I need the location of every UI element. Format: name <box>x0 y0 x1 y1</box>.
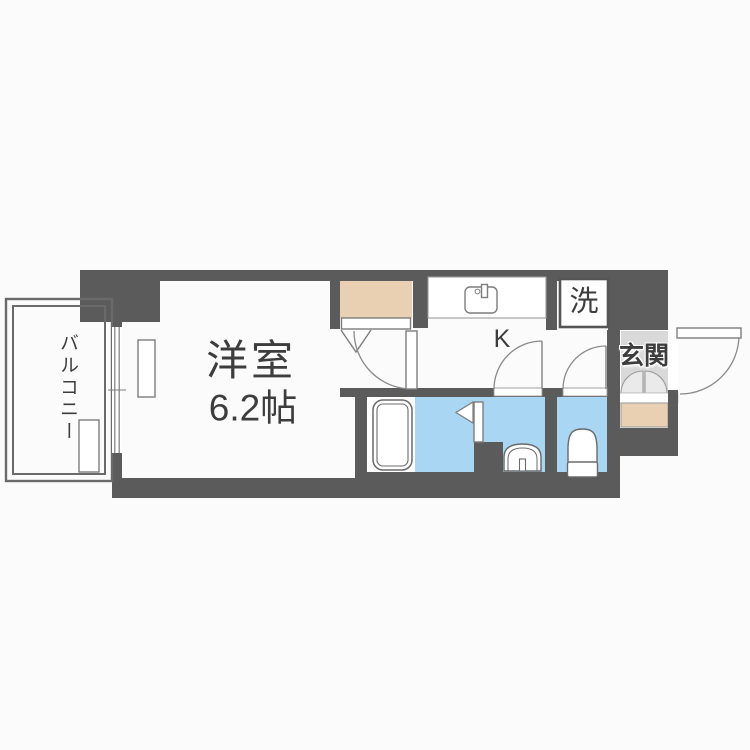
bathroom-door-leaf <box>474 402 483 442</box>
entrance-step <box>621 403 668 427</box>
toilet-door <box>563 346 607 396</box>
closet <box>340 281 412 352</box>
front-doorway-opening <box>668 330 678 390</box>
bathtub <box>373 400 412 470</box>
front-door <box>677 328 741 394</box>
washroom-door-threshold <box>494 388 542 396</box>
room-door-leaf <box>406 331 417 389</box>
faucet-lever-icon <box>482 285 488 298</box>
toilet-door-threshold <box>563 388 607 396</box>
washbasin-faucet-icon <box>520 459 526 471</box>
closet-front-track <box>342 318 411 329</box>
room-pillar <box>138 340 155 397</box>
laundry-label: 洗 <box>569 287 598 317</box>
floorplan-drawing <box>0 0 750 750</box>
faucet-icon <box>475 289 480 294</box>
main-room-size: 6.2帖 <box>209 390 297 429</box>
room-door <box>354 331 417 389</box>
balcony-utility-box <box>79 420 99 472</box>
main-room-label: 洋室 <box>206 339 296 383</box>
closet-area <box>340 281 412 318</box>
kitchen-counter <box>428 277 546 318</box>
balcony-window <box>108 327 126 453</box>
floorplan-canvas: 洋室 6.2帖 バルコニー K 洗 玄関 <box>0 0 750 750</box>
front-door-leaf <box>677 328 741 338</box>
kitchen-label: K <box>494 326 511 352</box>
washbasin <box>504 444 541 471</box>
entrance-label: 玄関 <box>619 343 669 369</box>
toilet <box>568 429 598 477</box>
toilet-tank <box>568 462 598 477</box>
washroom-floor <box>483 397 545 442</box>
balcony-label: バルコニー <box>57 333 77 443</box>
